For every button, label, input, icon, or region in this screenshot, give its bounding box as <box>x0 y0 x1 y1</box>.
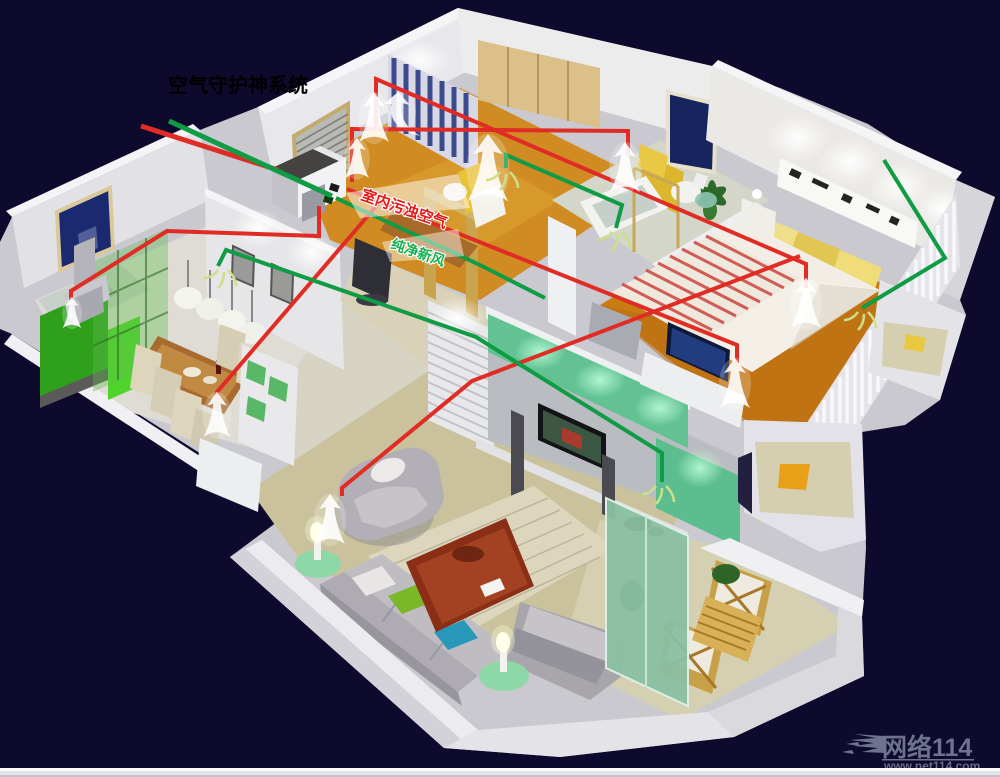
svg-text:网络114: 网络114 <box>882 733 972 762</box>
svg-text:空气守护神系统: 空气守护神系统 <box>168 73 308 97</box>
